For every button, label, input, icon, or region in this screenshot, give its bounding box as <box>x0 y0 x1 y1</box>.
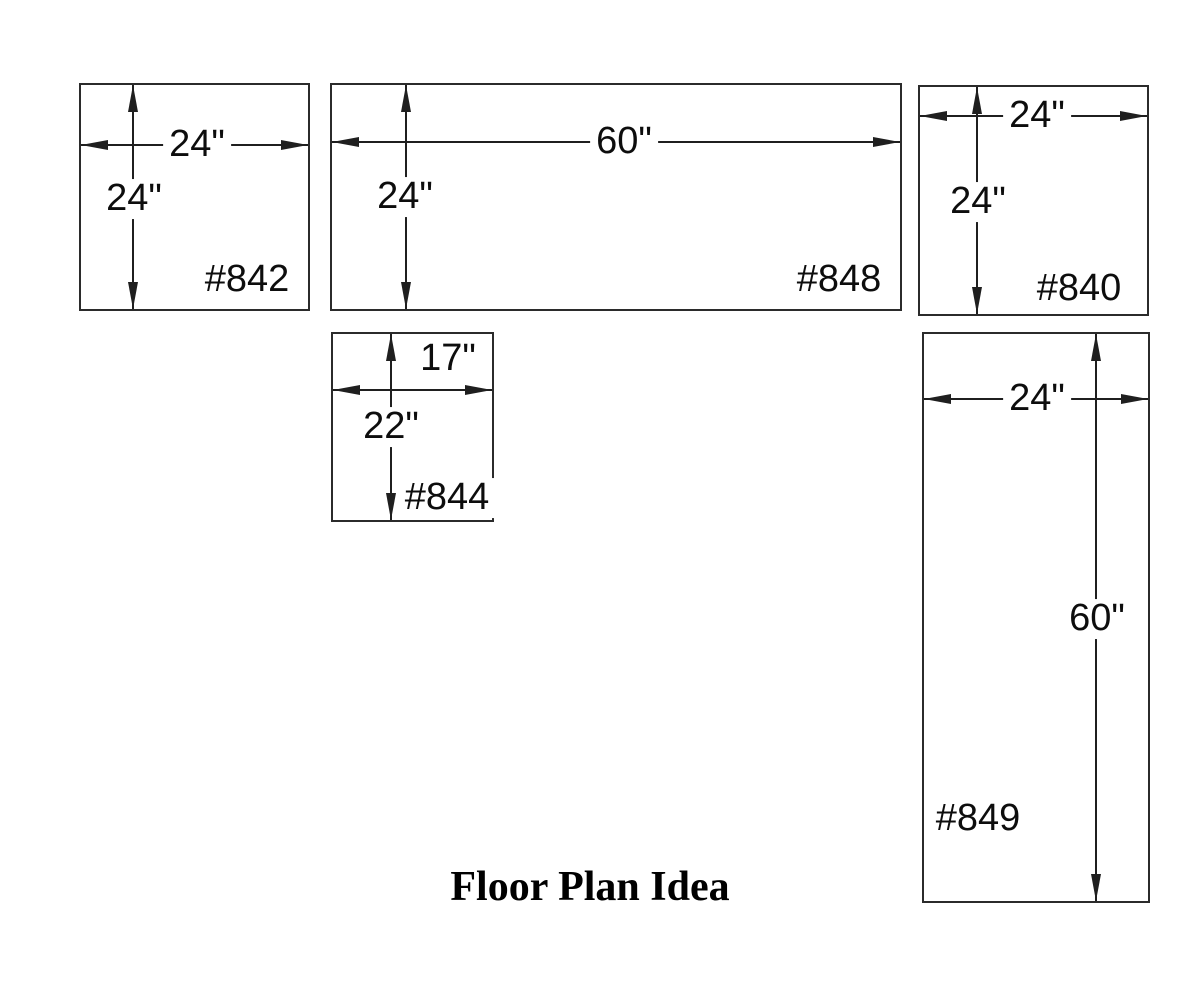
arrow-up-icon <box>386 334 396 361</box>
unit-box-849: 24" 60" #849 <box>922 332 1150 903</box>
arrow-left-icon <box>332 137 359 147</box>
width-dimension-label: 24" <box>1003 379 1071 419</box>
unit-box-848: 60" 24" #848 <box>330 83 902 311</box>
width-dimension-label: 24" <box>1003 96 1071 136</box>
height-dimension-label: 24" <box>371 177 439 217</box>
arrow-right-icon <box>1121 394 1148 404</box>
arrow-right-icon <box>465 385 492 395</box>
unit-id-label: #849 <box>930 799 1027 839</box>
width-dimension-label: 17" <box>414 339 482 379</box>
height-dimension-label: 22" <box>357 407 425 447</box>
arrow-down-icon <box>128 282 138 309</box>
arrow-left-icon <box>924 394 951 404</box>
arrow-left-icon <box>333 385 360 395</box>
height-dimension-label: 24" <box>100 179 168 219</box>
unit-box-840: 24" 24" #840 <box>918 85 1149 316</box>
unit-box-844: 17" 22" #844 <box>331 332 494 522</box>
arrow-left-icon <box>920 111 947 121</box>
unit-box-842: 24" 24" #842 <box>79 83 310 311</box>
arrow-up-icon <box>128 85 138 112</box>
arrow-up-icon <box>1091 334 1101 361</box>
arrow-right-icon <box>873 137 900 147</box>
arrow-down-icon <box>972 287 982 314</box>
width-dimension-label: 24" <box>163 125 231 165</box>
arrow-down-icon <box>401 282 411 309</box>
arrow-down-icon <box>386 493 396 520</box>
unit-id-label: #844 <box>399 478 496 518</box>
arrow-right-icon <box>281 140 308 150</box>
unit-id-label: #842 <box>199 260 296 300</box>
arrow-down-icon <box>1091 874 1101 901</box>
arrow-up-icon <box>401 85 411 112</box>
unit-id-label: #848 <box>791 260 888 300</box>
page-title: Floor Plan Idea <box>450 863 729 911</box>
height-dimension-label: 24" <box>944 182 1012 222</box>
arrow-up-icon <box>972 87 982 114</box>
height-dimension-label: 60" <box>1063 599 1131 639</box>
floor-plan-canvas: 24" 24" #842 60" 24" #848 24" 24" #840 1… <box>0 0 1200 1000</box>
unit-id-label: #840 <box>1031 269 1128 309</box>
width-dimension-label: 60" <box>590 122 658 162</box>
arrow-left-icon <box>81 140 108 150</box>
arrow-right-icon <box>1120 111 1147 121</box>
